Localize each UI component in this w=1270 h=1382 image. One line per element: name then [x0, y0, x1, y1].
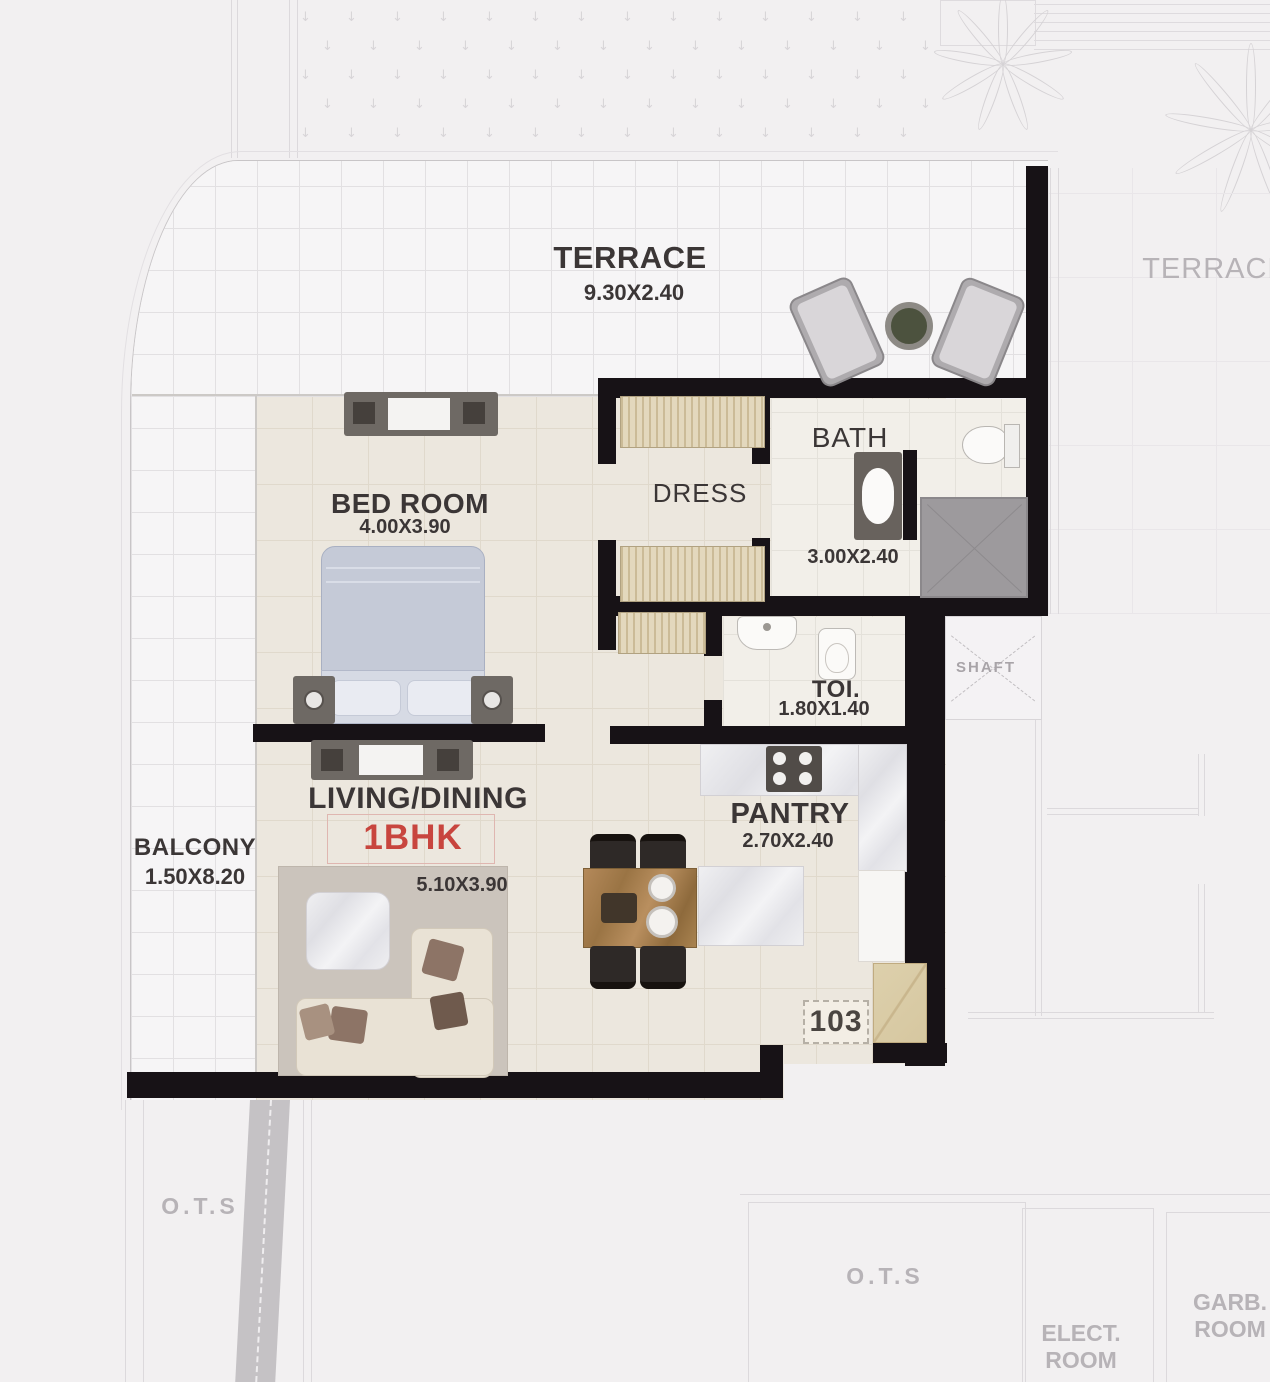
plate — [646, 906, 678, 938]
stove-burner — [773, 752, 786, 765]
dining-chair — [640, 946, 686, 989]
island-counter — [698, 866, 804, 946]
entrance-door — [873, 963, 927, 1043]
dress-label: DRESS — [653, 478, 748, 509]
garb-room-label-line2: ROOM — [1194, 1316, 1266, 1343]
media-console — [311, 740, 473, 780]
patio-table — [885, 302, 933, 350]
stove-burner — [799, 752, 812, 765]
garb-room-label-line1: GARB. — [1193, 1289, 1267, 1316]
bath-dims: 3.00X2.40 — [807, 546, 898, 569]
unit-number: 103 — [809, 1005, 862, 1039]
vanity-counter — [854, 452, 902, 540]
toilet-tank — [1004, 424, 1020, 468]
context-line — [297, 0, 298, 158]
bedroom-dims: 4.00X3.90 — [359, 516, 450, 539]
context-line — [1166, 1212, 1167, 1382]
console-cabinet — [463, 402, 485, 424]
console-center — [359, 745, 423, 775]
table-mat — [601, 893, 637, 923]
kitchen-counter-side — [858, 744, 907, 872]
tv-console — [344, 392, 498, 436]
console-cabinet — [321, 749, 343, 771]
living-label: LIVING/DINING — [308, 782, 528, 816]
lamp — [304, 690, 324, 710]
stove — [766, 746, 822, 792]
wc-bowl — [825, 643, 849, 673]
nightstand — [471, 676, 513, 724]
context-line — [1058, 168, 1059, 614]
sofa-pillow — [328, 1006, 368, 1045]
context-line — [237, 0, 238, 158]
adjacent-terrace-label: TERRACE — [1142, 253, 1270, 286]
context-line — [1198, 754, 1199, 816]
terrace-label: TERRACE — [553, 240, 706, 276]
adjacent-terrace-floor — [1048, 168, 1270, 614]
ots-left-label: O.T.S — [161, 1193, 239, 1220]
coffee-table — [306, 892, 390, 970]
stove-burner — [773, 772, 786, 785]
wall-segment — [760, 1045, 783, 1098]
ots-right-room — [748, 1202, 1026, 1382]
blanket-fold — [326, 567, 480, 569]
wardrobe — [620, 396, 765, 448]
elect-room-label-line1: ELECT. — [1041, 1320, 1120, 1347]
wash-basin — [862, 468, 894, 524]
sofa-pillow — [429, 991, 468, 1030]
hand-basin — [737, 616, 797, 650]
faucet-dot — [763, 623, 771, 631]
nightstand — [293, 676, 335, 724]
context-line — [1204, 754, 1205, 816]
living-dims: 5.10X3.90 — [416, 874, 507, 897]
pantry-dims: 2.70X2.40 — [742, 830, 833, 853]
context-line — [311, 1100, 312, 1382]
context-line — [1166, 1212, 1270, 1213]
console-cabinet — [353, 402, 375, 424]
bed-pillow — [331, 680, 401, 716]
louvre-decoration — [1034, 0, 1270, 50]
context-line — [740, 1194, 1270, 1195]
wall-segment — [873, 1043, 947, 1063]
pantry-label: PANTRY — [731, 798, 850, 831]
counter-white-section — [858, 870, 905, 962]
plate — [648, 874, 676, 902]
toilet-dims: 1.80X1.40 — [778, 698, 869, 721]
wc — [818, 628, 856, 680]
console-cabinet — [437, 749, 459, 771]
context-line — [1204, 884, 1205, 1012]
terrace-dims: 9.30X2.40 — [584, 280, 684, 306]
stair-dashed-line — [255, 1100, 272, 1382]
balcony-label: BALCONY — [134, 834, 256, 862]
context-line — [143, 1100, 144, 1382]
shaft-label: SHAFT — [956, 659, 1016, 676]
context-line — [1198, 884, 1199, 1012]
wall-segment — [704, 596, 722, 656]
context-line — [1047, 808, 1198, 809]
stove-burner — [799, 772, 812, 785]
dining-chair — [590, 946, 636, 989]
exterior-patch — [784, 1064, 948, 1100]
wall-segment — [903, 450, 917, 540]
context-line — [289, 0, 290, 158]
context-line — [303, 1100, 304, 1382]
dining-table — [583, 868, 697, 948]
wall-segment — [598, 378, 616, 464]
console-center — [388, 398, 450, 430]
ots-right-label: O.T.S — [846, 1263, 924, 1290]
stair-band — [235, 1100, 290, 1382]
wardrobe — [620, 546, 765, 602]
balcony-floor — [131, 397, 256, 1100]
elect-room-label-line2: ROOM — [1045, 1347, 1117, 1374]
blanket-fold — [326, 581, 480, 583]
wall-segment — [610, 726, 945, 744]
balcony-dims: 1.50X8.20 — [145, 864, 245, 890]
shower — [920, 497, 1028, 598]
toilet-wc — [962, 426, 1008, 464]
terrace-floor — [131, 161, 1048, 397]
floor-plan: ↓↓↓↓↓↓↓↓↓↓↓↓↓↓↓↓↓↓↓↓↓↓↓↓↓↓↓↓↓↓↓↓↓↓↓↓↓↓↓↓… — [0, 0, 1270, 1382]
bed-blanket — [321, 546, 485, 672]
context-line — [231, 0, 232, 158]
lamp — [482, 690, 502, 710]
bed-pillow — [407, 680, 477, 716]
wall-segment — [598, 540, 616, 650]
context-line — [1047, 814, 1198, 815]
bath-label: BATH — [812, 422, 889, 454]
bed — [321, 546, 485, 724]
context-line — [125, 1100, 126, 1382]
hall-closet — [618, 612, 706, 654]
unit-type-label: 1BHK — [363, 818, 462, 858]
unit-number-badge: 103 — [803, 1000, 869, 1044]
